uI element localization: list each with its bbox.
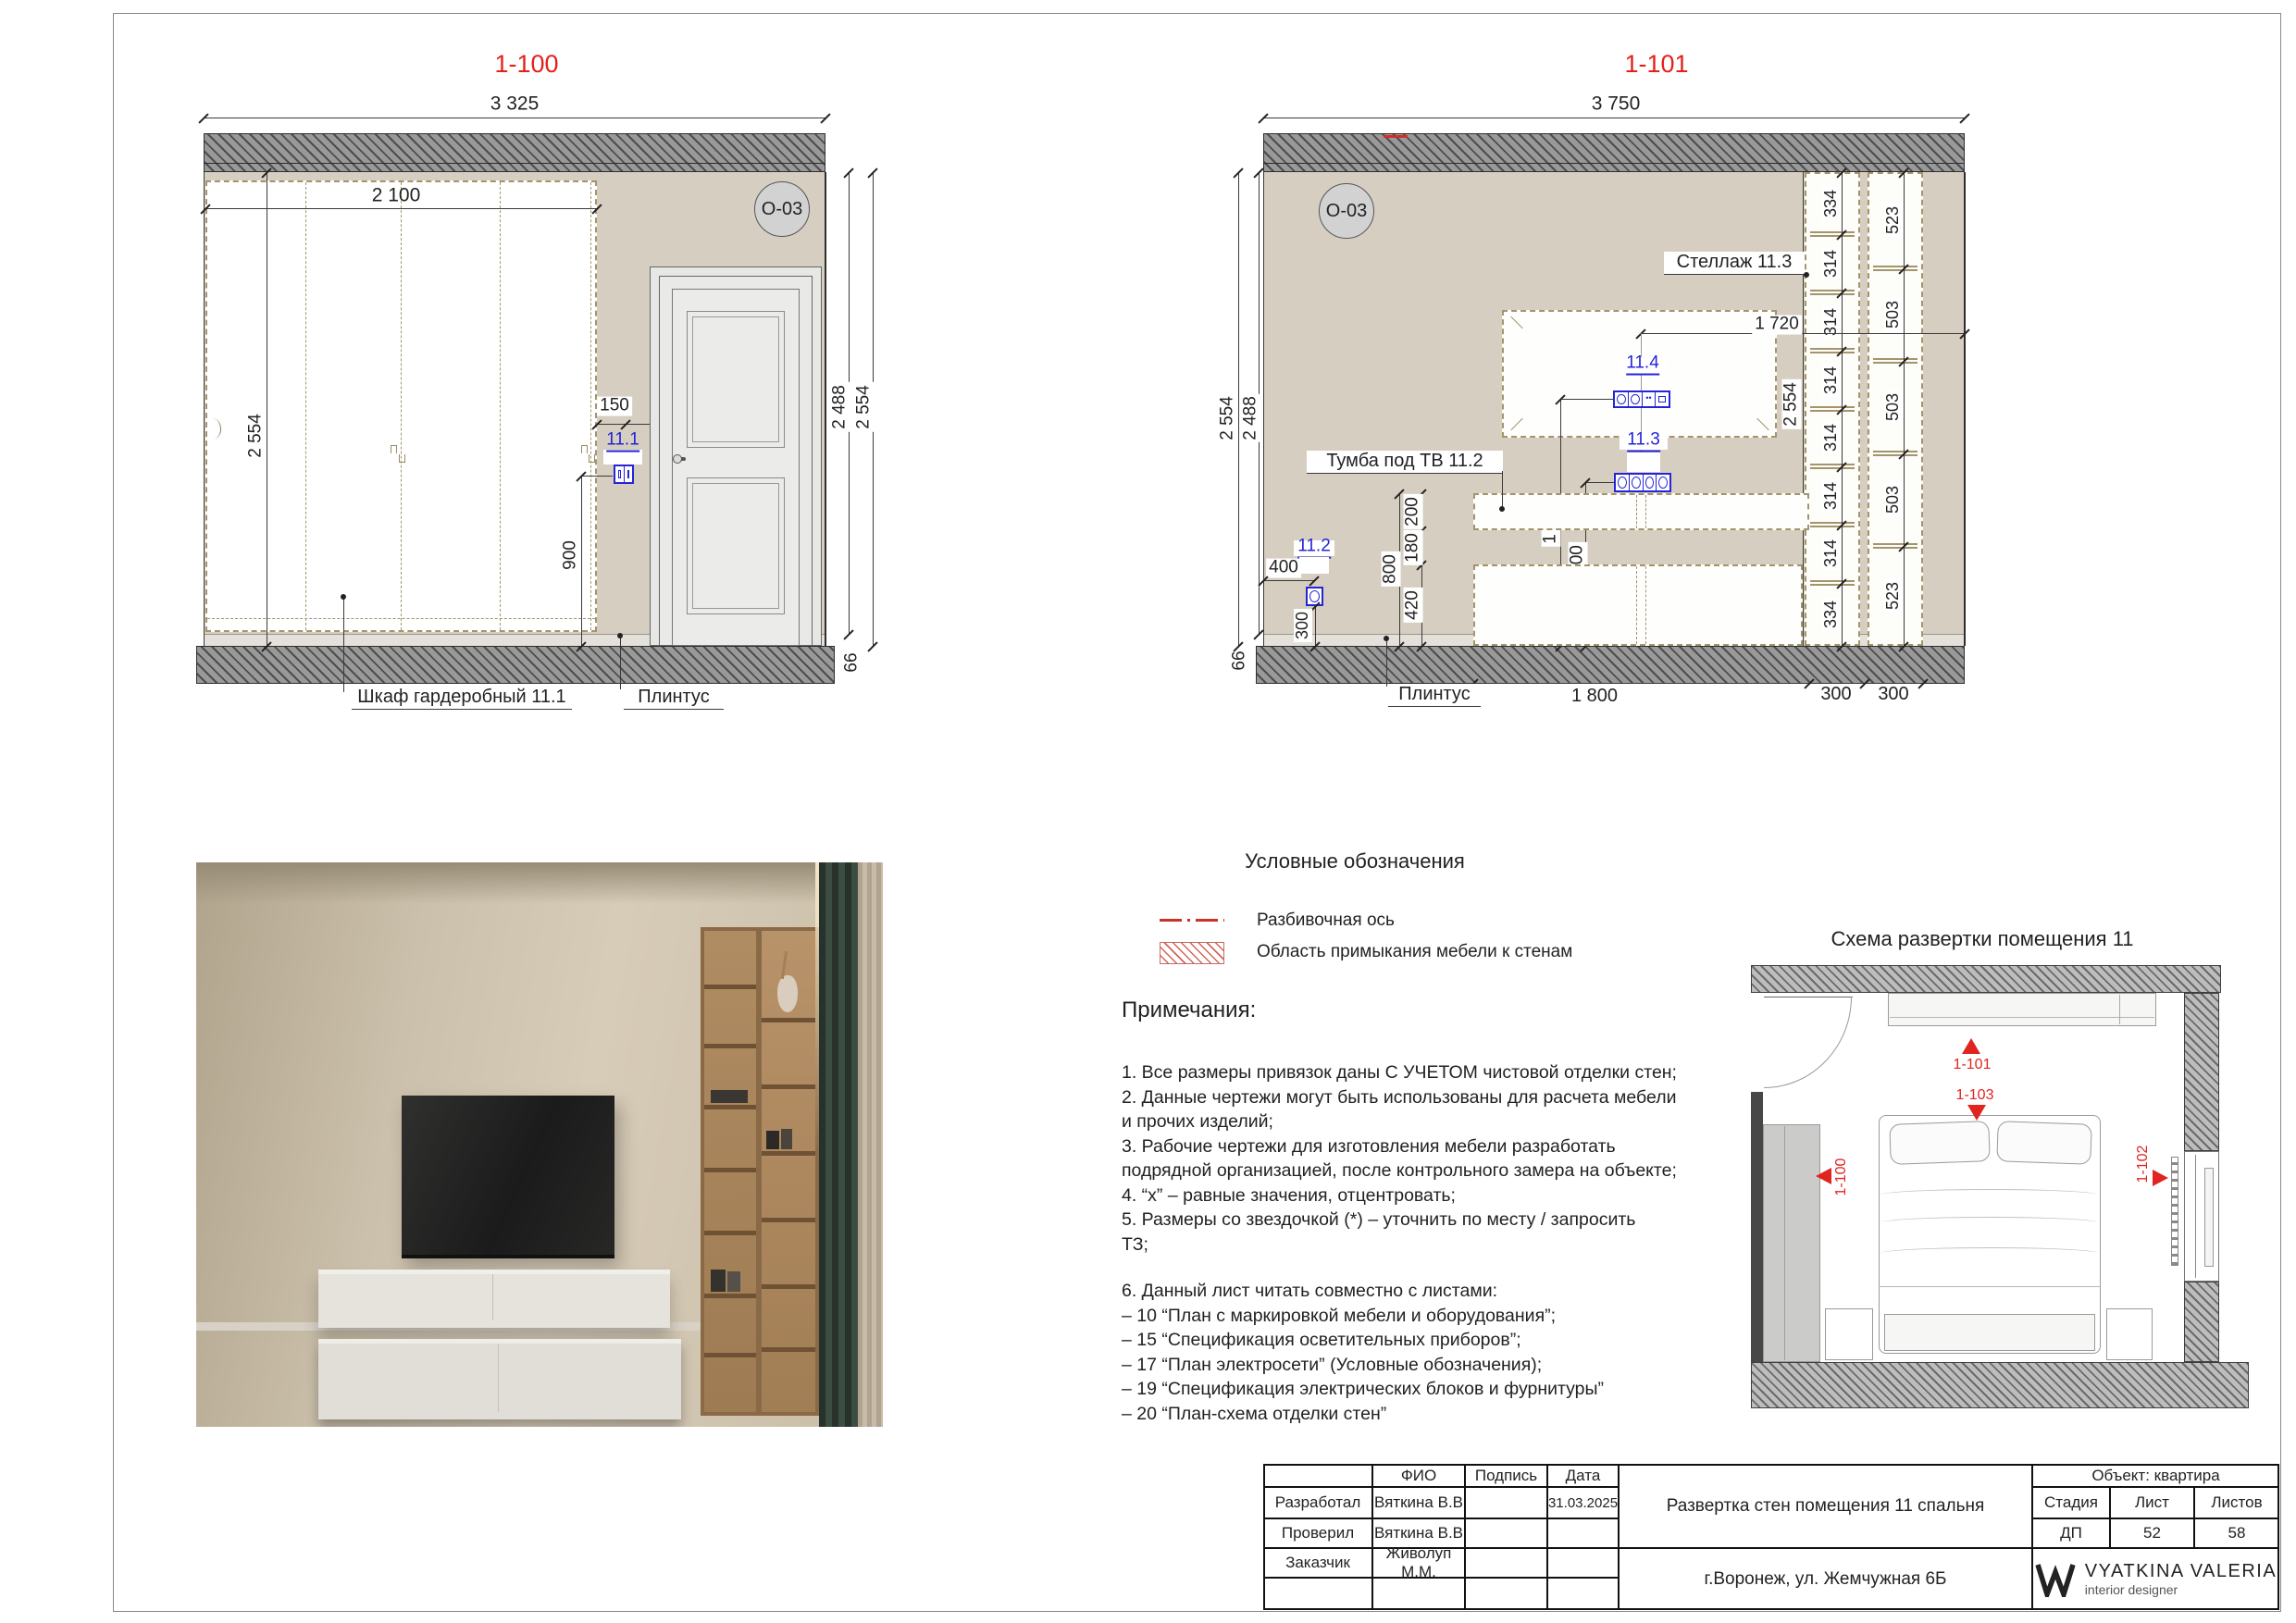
photo-books [727, 1271, 740, 1292]
dim-150: 150 [597, 397, 632, 416]
note-line: – 10 “План с маркировкой мебели и оборуд… [1122, 1304, 1677, 1329]
socket-block-icon [1613, 390, 1670, 408]
view-marker-down-icon [1967, 1105, 1986, 1121]
note-line: подрядной организацией, после контрольно… [1122, 1158, 1677, 1183]
chain-dim: 314 [1822, 537, 1841, 570]
tb-address: г.Воронеж, ул. Жемчужная 6Б [1619, 1548, 2032, 1610]
socket-icon [1306, 587, 1323, 606]
note-line: – 20 “План-схема отделки стен” [1122, 1402, 1677, 1427]
scheme-wall-bottom [1751, 1362, 2249, 1408]
note-line: 6. Данный лист читать совместно с листам… [1122, 1279, 1677, 1304]
wardrobe-handle-icon [581, 445, 588, 453]
area-hatch-sample [1160, 942, 1224, 964]
scheme-top-unit [1888, 993, 2156, 1026]
view-marker-label: 1-101 [1954, 1057, 1992, 1073]
dim-420: 420 [1404, 588, 1423, 623]
drawing-sheet: 1-100 3 325 2 100 2 554 O-03 [0, 0, 2296, 1623]
legend-axis-label: Разбивочная ось [1257, 909, 1395, 934]
dim-2554-right: 2 554 [855, 382, 875, 432]
scheme-wall-right-upper [2184, 993, 2219, 1151]
label-shelving: Стеллаж 11.3 [1664, 252, 1805, 275]
dim-2554-left: 2 554 [1219, 394, 1238, 442]
tb-fio-header: ФИО [1372, 1464, 1465, 1487]
chain-dim: 503 [1884, 298, 1903, 331]
axis-mark [1384, 135, 1408, 138]
dim-2100: 2 100 [372, 184, 421, 205]
note-line: – 15 “Спецификация осветительных приборо… [1122, 1328, 1677, 1353]
view-marker-left-icon [1816, 1168, 1831, 1184]
chain-dim: 314 [1822, 364, 1841, 397]
chain-dim: 503 [1884, 483, 1903, 516]
photo-cabinet-lower [318, 1339, 681, 1419]
wardrobe-handle-icon [589, 454, 595, 463]
scheme-foot-throw [1884, 1314, 2095, 1351]
scheme-pillow [1889, 1121, 1990, 1165]
scheme-nightstand [1825, 1308, 1873, 1360]
tb-stage-value: ДП [2032, 1518, 2110, 1548]
opening-marker-o03: O-03 [754, 181, 810, 237]
scheme-wall-top [1751, 965, 2221, 993]
elevation-1-101-title: 1-101 [1624, 51, 1688, 79]
switch-icon [614, 465, 634, 484]
scheme-nightstand [2106, 1308, 2153, 1360]
view-marker-right-icon [2153, 1170, 2168, 1186]
dim-180: 180 [1404, 530, 1423, 565]
logo-name: VYATKINA VALERIA [2085, 1561, 2277, 1582]
photo-tv [402, 1096, 614, 1258]
photo-vase [777, 975, 798, 1012]
scheme-balcony-door [2184, 1151, 2219, 1282]
scheme-wall-left [1751, 1092, 1763, 1362]
dim-2488-right: 2 488 [831, 382, 850, 432]
door-panel [687, 311, 785, 448]
ref-11-1: 11.1 [606, 431, 639, 452]
logo-w-icon [2035, 1562, 2076, 1597]
door-panel [687, 477, 785, 614]
label-wardrobe: Шкаф гардеробный 11.1 [352, 687, 572, 710]
tb-logo-cell: VYATKINA VALERIA interior designer [2032, 1548, 2279, 1610]
chain-dim: 334 [1822, 187, 1841, 220]
photo-cabinet-upper [318, 1270, 670, 1328]
tv-stand-upper [1473, 493, 1809, 530]
dim-1720: 1 720 [1752, 316, 1802, 335]
legend-area-label: Область примыкания мебели к стенам [1257, 940, 1572, 965]
dim-66: 66 [843, 650, 863, 675]
tv-stand-lower [1473, 564, 1803, 646]
chain-dim: 314 [1822, 421, 1841, 454]
photo-books [711, 1090, 748, 1103]
note-line: – 19 “Спецификация электрических блоков … [1122, 1377, 1677, 1402]
note-line: – 17 “План электросети” (Условные обозна… [1122, 1353, 1677, 1378]
note-line: 5. Размеры со звездочкой (*) – уточнить … [1122, 1208, 1677, 1233]
socket-block-icon [1614, 473, 1671, 492]
door-handle-icon [673, 454, 682, 464]
note-line: 1. Все размеры привязок даны С УЧЕТОМ чи… [1122, 1060, 1677, 1085]
note-line: ТЗ; [1122, 1233, 1677, 1258]
notes-title: Примечания: [1122, 997, 1256, 1023]
dim-300: 300 [1294, 609, 1312, 642]
ref-11-2: 11.2 [1297, 538, 1331, 559]
scheme-pillow [1996, 1121, 2091, 1165]
rod-hook [205, 418, 221, 439]
view-marker-label: 1-100 [1833, 1158, 1850, 1196]
chain-dim: 503 [1884, 390, 1903, 424]
scheme-radiator [2171, 1157, 2178, 1266]
view-marker-label: 1-103 [1956, 1087, 1994, 1104]
chain-dim: 314 [1822, 479, 1841, 513]
photo-curtain-sheer [858, 862, 883, 1427]
chain-dim: 523 [1884, 579, 1903, 613]
label-plinth: Плинтус [1388, 684, 1481, 707]
ceiling-slab [1263, 133, 1965, 172]
note-line [1122, 1257, 1677, 1279]
dim-3750: 3 750 [1592, 93, 1641, 114]
dim-300b: 300 [1818, 684, 1854, 704]
dim-800: 800 [1382, 551, 1401, 587]
ref-11-4: 11.4 [1626, 354, 1659, 376]
ref-11-3: 11.3 [1627, 431, 1660, 452]
dim-200: 200 [1404, 494, 1423, 529]
scheme-title: Схема развертки помещения 11 [1831, 928, 2133, 950]
view-marker-label: 1-102 [2135, 1146, 2152, 1183]
dim-66: 66 [1231, 650, 1250, 670]
render-photo [196, 862, 883, 1427]
dim-2554-inner: 2 554 [1782, 379, 1802, 429]
tb-date-header: Дата [1547, 1464, 1619, 1487]
view-marker-up-icon [1962, 1038, 1980, 1054]
wardrobe-handle-icon [391, 445, 397, 453]
dim-300b: 300 [1875, 684, 1911, 704]
photo-books [711, 1270, 726, 1292]
chain-dim: 523 [1884, 204, 1903, 237]
chain-dim: 334 [1822, 598, 1841, 631]
photo-curtain-green [819, 862, 858, 1427]
dim-2488-left: 2 488 [1242, 394, 1261, 442]
tb-doc-title: Развертка стен помещения 11 спальня [1619, 1464, 2032, 1548]
dim-3325: 3 325 [490, 93, 540, 114]
opening-marker-o03: O-03 [1319, 183, 1374, 239]
note-line: и прочих изделий; [1122, 1109, 1677, 1134]
wardrobe-handle-icon [399, 454, 405, 463]
tb-sheet-value: 52 [2110, 1518, 2194, 1548]
tb-object: Объект: квартира [2032, 1464, 2279, 1487]
scheme-wardrobe [1763, 1124, 1820, 1362]
dim-400: 400 [1266, 559, 1301, 578]
note-line: 4. “х” – равные значения, отцентровать; [1122, 1183, 1677, 1208]
logo-sub: interior designer [2085, 1582, 2277, 1597]
floor-slab [196, 646, 835, 684]
dim-2554-left: 2 554 [247, 411, 267, 461]
note-line: 3. Рабочие чертежи для изготовления мебе… [1122, 1134, 1677, 1159]
legend-title: Условные обозначения [1245, 850, 1465, 873]
elevation-1-100-title: 1-100 [494, 51, 558, 79]
scheme-wall-right-lower [2184, 1282, 2219, 1362]
label-tv-stand: Тумба под ТВ 11.2 [1307, 451, 1503, 474]
tb-sheets-value: 58 [2194, 1518, 2279, 1548]
axis-line-sample [1160, 919, 1224, 922]
photo-books [781, 1129, 792, 1149]
floor-slab [1256, 646, 1965, 684]
note-line: 2. Данные чертежи могут быть использован… [1122, 1085, 1677, 1110]
label-plinth: Плинтус [624, 687, 724, 710]
dim-900: 900 [562, 538, 581, 573]
chain-dim: 314 [1822, 247, 1841, 280]
ceiling-slab [204, 133, 825, 172]
tb-sign-header: Подпись [1465, 1464, 1547, 1487]
photo-books [766, 1131, 779, 1149]
dim-1800: 1 800 [1569, 686, 1620, 706]
